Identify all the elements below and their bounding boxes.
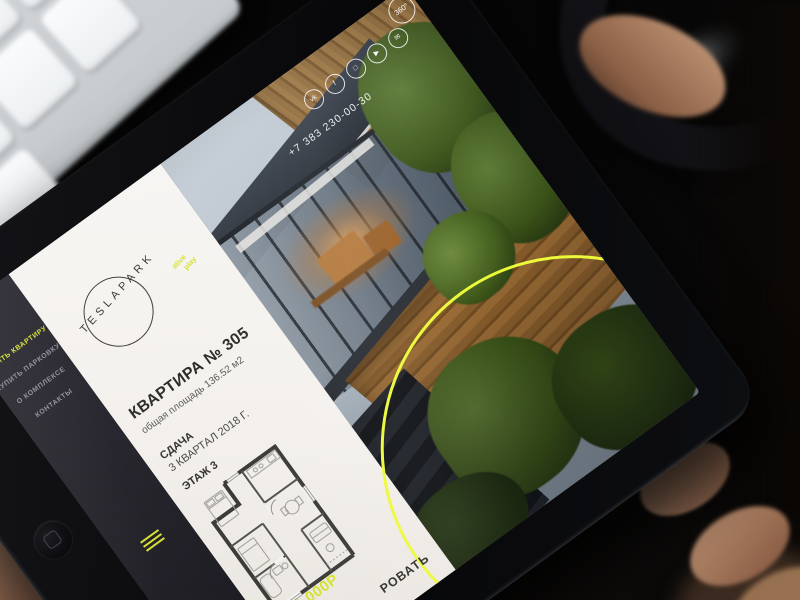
logo-circle-icon[interactable] <box>70 263 168 361</box>
sidebar-item-3[interactable]: О КОМПЛЕКСЕ <box>8 360 75 412</box>
home-button[interactable] <box>27 513 80 566</box>
apartment-title: КВАРТИРА № 305 <box>126 324 253 423</box>
menu-icon[interactable] <box>140 529 167 554</box>
sidebar-item-4[interactable]: КОНТАКТЫ <box>21 378 88 430</box>
photo-scene: +7 383 230-00-30 vkf□▶✉ 360° TESLAPARK #… <box>0 0 800 600</box>
logo-tagline: #live play <box>171 249 199 277</box>
home-button-icon <box>42 529 63 550</box>
